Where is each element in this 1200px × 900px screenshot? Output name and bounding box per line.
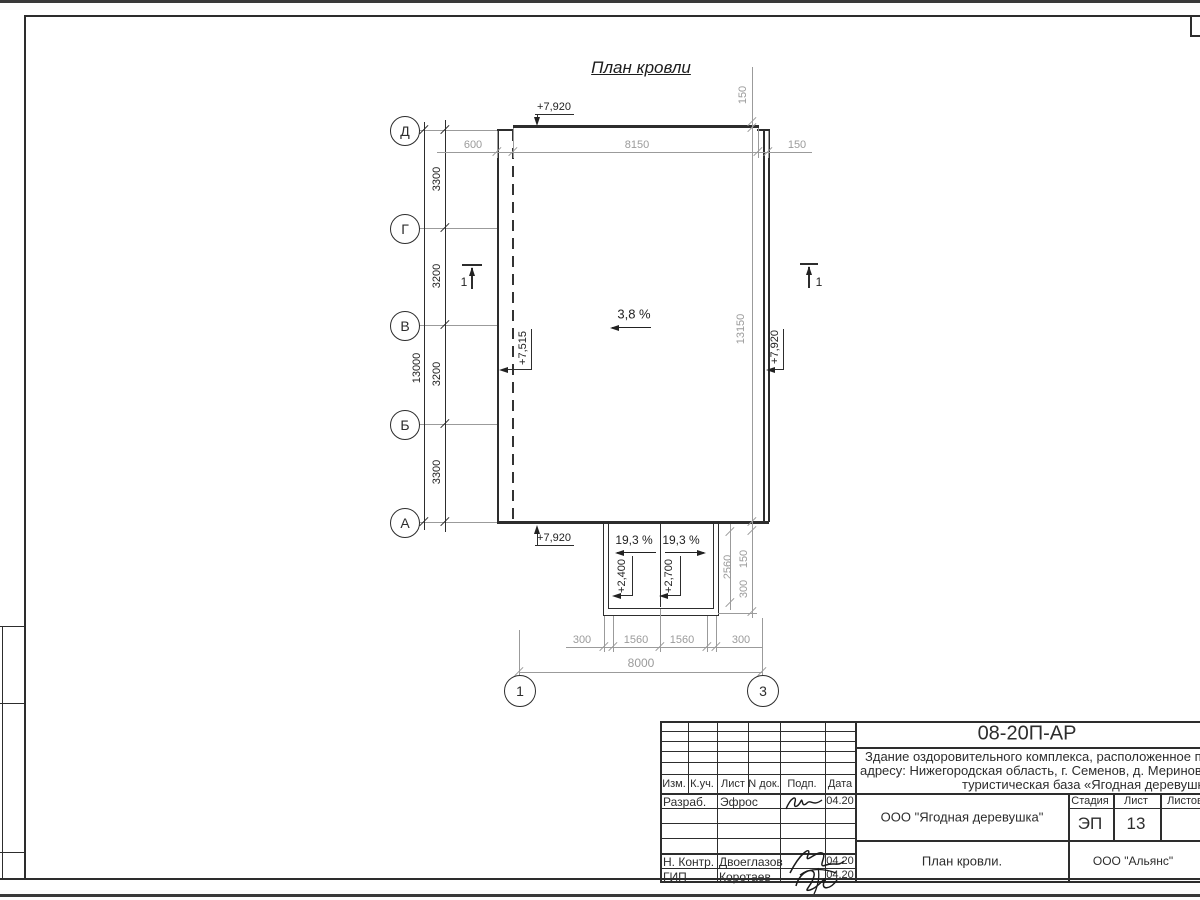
tb-name-korotaev: Коротаев [719,870,771,884]
axis-bubble-1: 1 [504,675,536,707]
roof-hidden-wall-line [512,130,514,521]
axis-bubble-v: В [390,311,420,341]
doc-number: 08-20П-АР [978,723,1077,746]
dim-right-13150: 13150 [735,314,747,345]
elev-top-arrowhead [534,117,540,126]
roof-top-edge [513,125,759,128]
tb-col-podp: Подп. [787,778,816,790]
axis-line-b [418,424,497,425]
sheet-number-value: 13 [1127,814,1146,834]
margin-box-line-2 [0,703,24,704]
tb-col-data: Дата [828,778,852,790]
axis-bubble-g: Г [390,214,420,244]
elev-inner-left-label: +7,515 [517,331,529,365]
tb-line [856,793,1200,795]
dim-top-150: 150 [788,139,806,151]
axis-label-g: Г [401,221,409,237]
tb-line [1160,793,1162,840]
drawing-title: План кровли [591,58,691,78]
axis-line-d [418,130,497,131]
axis-line-a [418,522,497,523]
tb-line [660,823,856,824]
elev-inner-left-bracket [531,329,532,370]
paper-edge-top [0,0,1200,3]
axis-label-v: В [400,318,409,334]
ext-line [758,128,759,158]
tb-line [660,774,856,775]
elev-bottom-label: +7,920 [537,532,571,544]
elev-porch-right-bracket [680,556,681,596]
axis-bubble-3: 3 [747,675,779,707]
margin-box-left-edge [2,626,3,879]
frame-left [24,15,26,879]
tb-line [660,751,856,752]
tb-line [1113,793,1115,840]
axis-label-d: Д [400,123,409,139]
axis-label-3: 3 [759,683,767,699]
axis-bubble-b: Б [390,410,420,440]
project-description-line3: туристическая база «Ягодная деревушка» [962,777,1200,792]
dim-line-8000 [519,672,762,673]
dim-chain-left-segments [445,120,446,532]
tb-name-efros: Эфрос [720,795,758,809]
elev-porch-left-label: +2,400 [616,559,628,593]
dim-bottom-1560a: 1560 [624,634,648,646]
elev-porch-left-arrowhead [612,593,621,599]
project-description-line2: адресу: Нижегородская область, г. Семено… [860,763,1200,778]
tb-role-nkontr: Н. Контр. [663,855,714,869]
org-customer: ООО "Ягодная деревушка" [881,810,1044,825]
tb-line [660,731,856,732]
project-description-line1: Здание оздоровительного комплекса, распо… [865,749,1200,764]
tb-col-list: Лист [721,778,745,790]
paper-edge-bottom [0,894,1200,897]
slope-porch-left-label: 19,3 % [615,533,652,547]
elev-porch-right-label: +2,700 [663,559,675,593]
section-mark-left-label: 1 [461,275,468,289]
org-contractor: ООО "Альянс" [1093,854,1173,868]
margin-box-line-1 [0,626,24,627]
drawing-sheet: План кровли Д Г В Б А 3300 3200 3200 330… [0,0,1200,900]
tb-line [660,721,662,883]
tb-line [1068,808,1200,809]
elev-top-label: +7,920 [537,101,571,113]
elev-bottom-arrowhead [534,525,540,534]
section-mark-right-flag [800,263,818,265]
elev-bottom-underline [535,545,574,546]
dim-left-3: 3200 [431,362,443,386]
axis-bubble-d: Д [390,116,420,146]
section-mark-left-arrow [469,267,475,276]
dim-left-2: 3200 [431,264,443,288]
elev-porch-left-bracket [632,556,633,596]
tb-col-kuch: К.уч. [690,778,714,790]
tb-name-dvoeglazov: Двоеглазов [719,855,783,869]
slope-porch-right-arrowhead [697,550,706,556]
axis-label-a: А [400,515,409,531]
margin-box-line-3 [0,852,24,853]
corner-box-line-h [1190,35,1200,37]
elev-right-arrowhead [766,367,775,373]
roof-left-edge [497,129,499,523]
section-mark-right-label: 1 [816,275,823,289]
dim-porch-2560: 2560 [722,555,734,579]
frame-bottom [0,878,1200,880]
sheet-label: Лист [1124,795,1148,807]
tb-col-izm: Изм. [662,778,686,790]
elev-porch-right-arrowhead [659,593,668,599]
tb-role-razrab: Разраб. [663,795,706,809]
axis-line-g [418,228,497,229]
slope-porch-left-arrowhead [615,550,624,556]
ext-line [768,131,769,158]
ext-line [718,613,757,614]
dim-bottom-300a: 300 [573,634,591,646]
ext-line [513,128,514,158]
axis-label-1: 1 [516,683,524,699]
signature-razrab [783,793,825,815]
sheets-label: Листов [1167,795,1200,807]
elev-inner-left-arrowhead [499,367,508,373]
dim-line-porch-bottom [566,647,763,648]
sheet-title: План кровли. [922,854,1002,869]
tb-line [717,721,718,883]
tb-line [660,721,1200,723]
roof-right-edge-outer [768,129,770,522]
elev-right-label: +7,920 [769,330,781,364]
tb-date-razrab: 04.20 [826,795,854,807]
elev-top-underline [535,114,574,115]
section-mark-right-arrow [806,266,812,275]
dim-chain-left-total [424,122,425,530]
dim-left-total: 13000 [411,353,423,384]
slope-porch-right-label: 19,3 % [662,533,699,547]
dim-bottom-total: 8000 [628,656,655,670]
tb-line [660,762,856,763]
tb-line [660,838,856,839]
axis-bubble-a: А [390,508,420,538]
dim-top-600: 600 [464,139,482,151]
corner-box-line-v [1190,17,1192,35]
dim-bottom-300b: 300 [732,634,750,646]
slope-main-arrowhead [610,325,619,331]
tb-line [660,741,856,742]
axis-label-b: Б [400,417,409,433]
tb-line [855,721,857,883]
tb-role-gip: ГИП [663,870,687,884]
stage-value: ЭП [1078,814,1102,834]
section-mark-left-flag [462,264,482,266]
frame-top [24,15,1200,17]
dim-right-150: 150 [737,86,749,104]
ext-line [762,618,763,676]
tb-line [1068,793,1070,883]
dim-top-8150: 8150 [625,139,649,151]
stage-label: Стадия [1071,795,1109,807]
dim-line-right [752,67,753,618]
dim-porch-150: 150 [738,550,750,568]
ext-line [497,131,498,158]
dim-left-1: 3300 [431,167,443,191]
dim-bottom-1560b: 1560 [670,634,694,646]
axis-line-v [418,325,497,326]
tb-line [856,840,1200,842]
roof-right-edge-inner [763,129,765,522]
tb-col-ndoc: N док. [748,778,779,790]
dim-porch-300: 300 [738,580,750,598]
slope-main-label: 3,8 % [617,307,650,322]
dim-left-4: 3300 [431,460,443,484]
elev-right-bracket [783,329,784,370]
signature-gip [790,862,842,896]
